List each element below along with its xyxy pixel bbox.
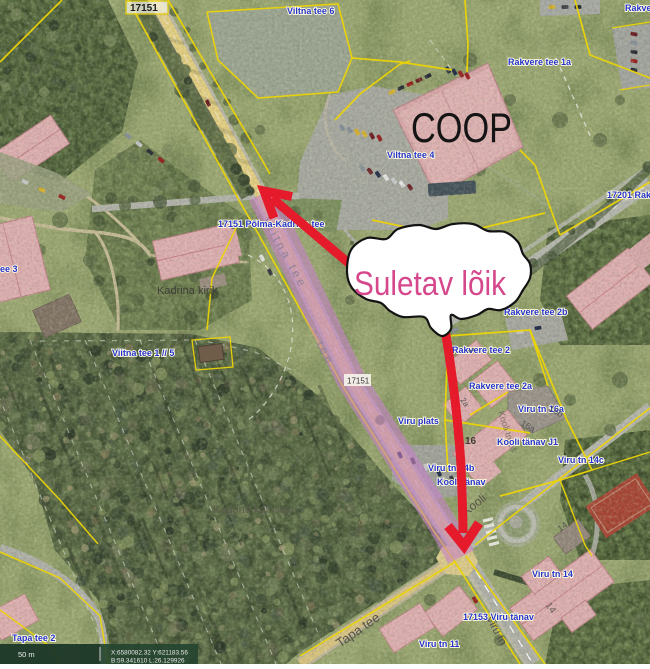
svg-text:Viitna tee 1 // 5: Viitna tee 1 // 5 xyxy=(112,348,174,358)
svg-text:17151: 17151 xyxy=(130,3,158,14)
svg-text:Viru plats: Viru plats xyxy=(398,416,439,426)
svg-text:Tapa tee 2: Tapa tee 2 xyxy=(12,633,55,643)
svg-text:Viltna tee 4: Viltna tee 4 xyxy=(387,150,434,160)
svg-text:X:6580082.32 Y:621183.56: X:6580082.32 Y:621183.56 xyxy=(111,650,188,657)
svg-text:Suletav lõik: Suletav lõik xyxy=(354,265,507,303)
svg-text:Viltna tee 6: Viltna tee 6 xyxy=(287,6,334,16)
svg-text:Viru tn 14: Viru tn 14 xyxy=(532,569,573,579)
svg-text:17153 Viru tänav: 17153 Viru tänav xyxy=(463,612,534,622)
svg-text:Kooli tänav J1: Kooli tänav J1 xyxy=(497,437,558,447)
svg-text:16: 16 xyxy=(465,436,477,447)
svg-text:17201 Rakv: 17201 Rakv xyxy=(607,190,650,200)
svg-text:17151: 17151 xyxy=(347,377,370,386)
svg-text:Rakve: Rakve xyxy=(625,3,650,13)
svg-text:Rakvere tee 1a: Rakvere tee 1a xyxy=(508,57,572,67)
svg-text:Rakvere tee 2a: Rakvere tee 2a xyxy=(469,381,533,391)
svg-text:ee 3: ee 3 xyxy=(0,264,18,274)
svg-text:Rakvere tee 2b: Rakvere tee 2b xyxy=(504,307,568,317)
svg-text:Rakvere tee 2: Rakvere tee 2 xyxy=(452,345,510,355)
svg-text:Viru tn 14b: Viru tn 14b xyxy=(428,463,475,473)
svg-text:50 m: 50 m xyxy=(18,650,35,659)
svg-text:B:59.341610 L:26.129926: B:59.341610 L:26.129926 xyxy=(111,658,185,665)
svg-text:Viru tn 14c: Viru tn 14c xyxy=(558,455,604,465)
svg-text:Viru tn 11: Viru tn 11 xyxy=(419,639,459,649)
svg-text:COOP: COOP xyxy=(411,104,512,151)
svg-text:Kadrina kirik: Kadrina kirik xyxy=(157,285,218,297)
svg-text:Kadrina kalmistu: Kadrina kalmistu xyxy=(213,504,294,516)
